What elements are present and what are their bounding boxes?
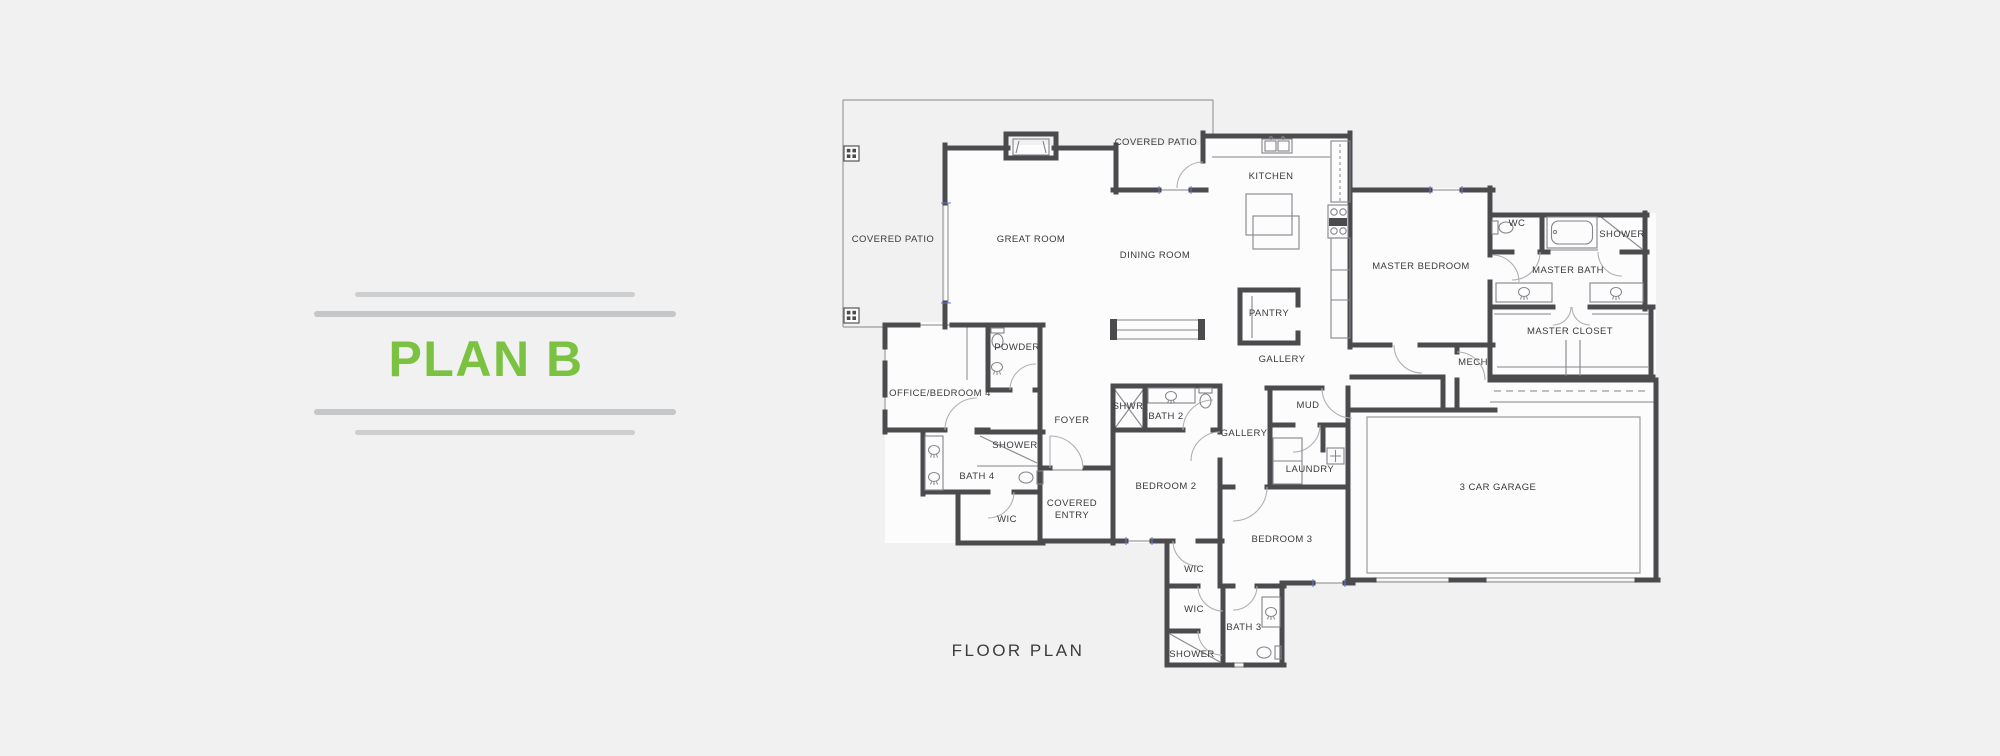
patio-posts [844, 146, 859, 323]
decorative-line-top-short [355, 292, 635, 297]
decorative-line-top-long [314, 311, 676, 317]
floor-plan-page: PLAN B [0, 0, 2000, 756]
plan-caption: FLOOR PLAN [952, 641, 1085, 661]
page-title: PLAN B [310, 330, 662, 388]
cabinet-end-cap [1198, 319, 1205, 340]
decorative-line-bottom-short [355, 430, 635, 435]
patio-post-icon [844, 146, 859, 161]
decorative-line-bottom-long [314, 409, 676, 415]
cabinet-end-cap [1110, 319, 1117, 340]
patio-post-icon [844, 308, 859, 323]
floor-plan-drawing [820, 80, 1680, 690]
